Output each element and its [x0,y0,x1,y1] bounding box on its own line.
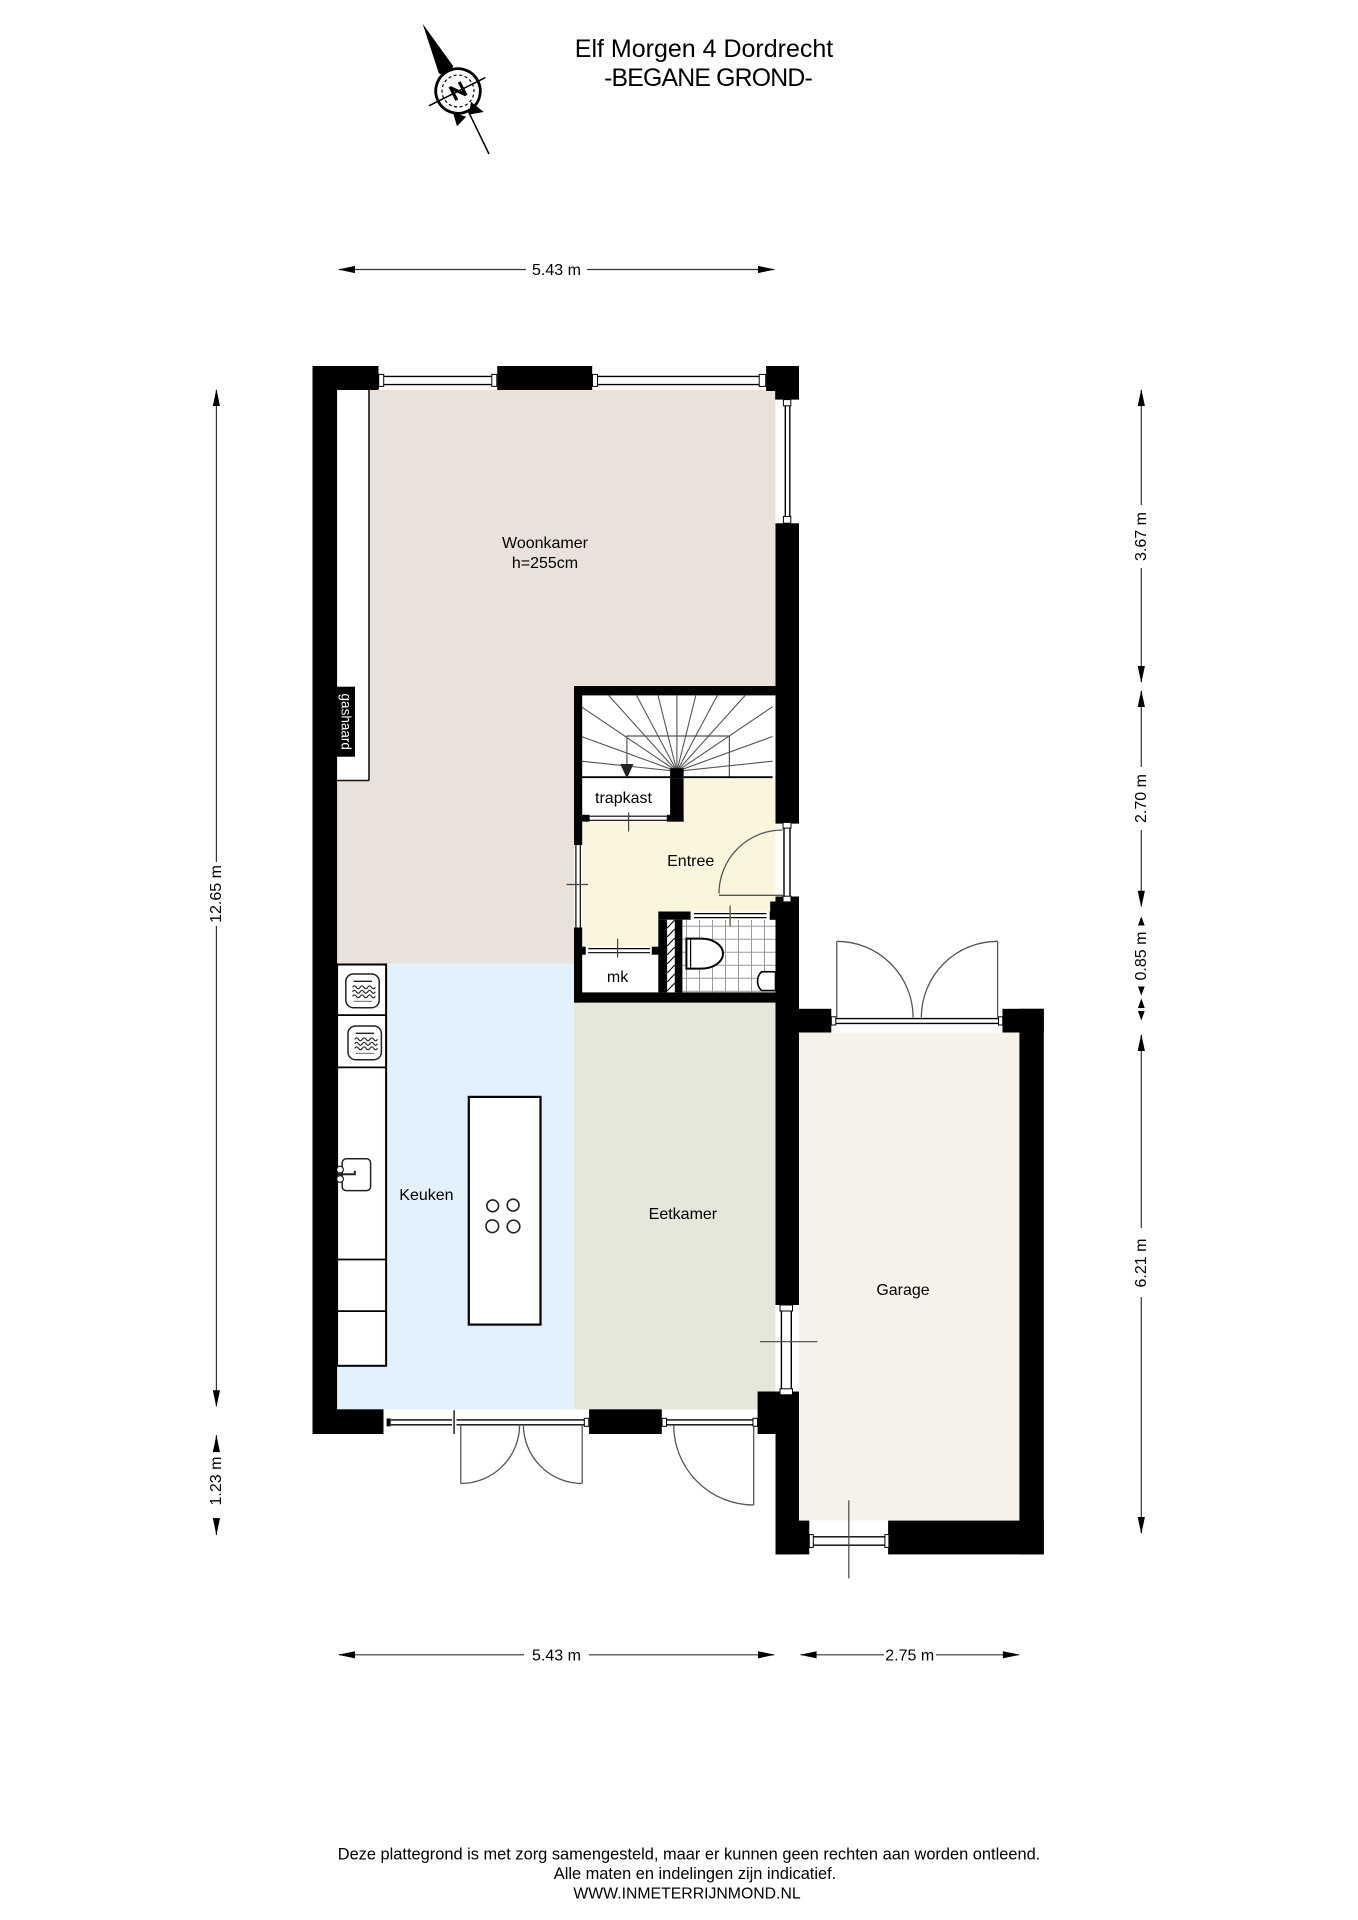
svg-text:Eetkamer: Eetkamer [649,1206,718,1223]
svg-text:Elf Morgen 4 Dordrecht: Elf Morgen 4 Dordrecht [575,35,834,63]
svg-text:12.65 m: 12.65 m [208,865,225,923]
svg-text:Keuken: Keuken [399,1187,453,1204]
svg-text:Alle maten en indelingen zijn: Alle maten en indelingen zijn indicatief… [554,1865,836,1883]
svg-text:WWW.INMETERRIJNMOND.NL: WWW.INMETERRIJNMOND.NL [573,1886,800,1903]
svg-text:gashaard: gashaard [338,694,353,750]
svg-text:h=255cm: h=255cm [512,555,578,572]
svg-text:1.23 m: 1.23 m [208,1457,225,1506]
svg-text:3.67 m: 3.67 m [1133,512,1150,561]
svg-text:Deze plattegrond is met zorg s: Deze plattegrond is met zorg samengestel… [338,1846,1041,1864]
svg-text:Woonkamer: Woonkamer [502,535,589,552]
svg-text:mk: mk [607,969,629,986]
svg-text:2.70 m: 2.70 m [1133,774,1150,823]
svg-text:0.85 m: 0.85 m [1133,932,1150,981]
svg-text:Garage: Garage [876,1282,929,1299]
svg-text:5.43 m: 5.43 m [532,262,581,279]
svg-text:5.43 m: 5.43 m [532,1647,581,1664]
svg-text:6.21 m: 6.21 m [1133,1239,1150,1288]
svg-text:Entree: Entree [667,853,714,870]
svg-text:-BEGANE GROND-: -BEGANE GROND- [604,65,812,92]
svg-text:trapkast: trapkast [595,790,652,807]
svg-text:2.75 m: 2.75 m [885,1647,934,1664]
